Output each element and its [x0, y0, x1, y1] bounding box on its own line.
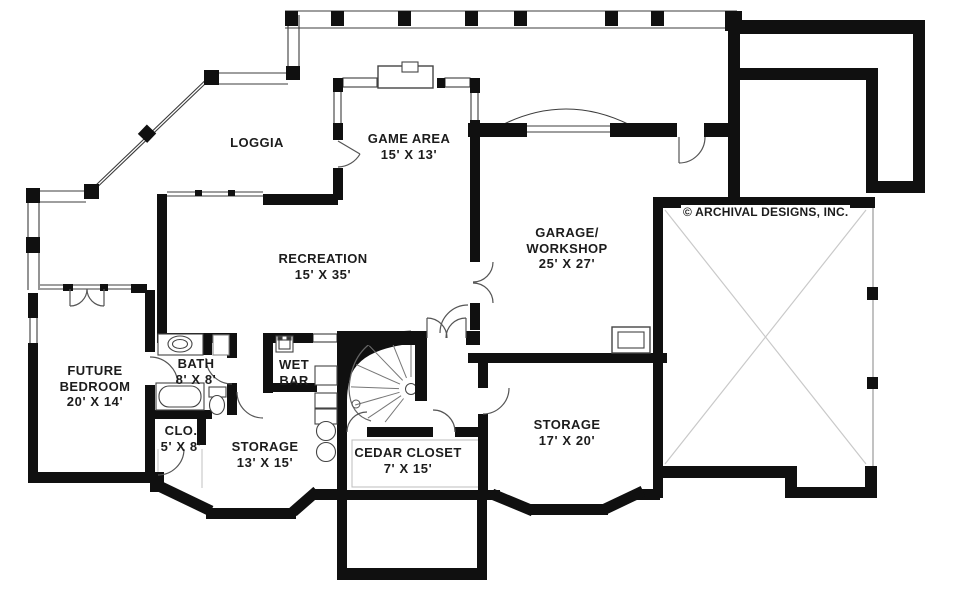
room-label-storage-17: STORAGE17' X 20' — [534, 417, 601, 448]
floor-plan: LOGGIA GAME AREA15' X 13' GARAGE/WORKSHO… — [0, 0, 960, 597]
garage-man-door — [679, 137, 705, 163]
room-label-wet-bar: WETBAR — [279, 357, 309, 388]
room-label-storage-13: STORAGE13' X 15' — [232, 439, 299, 470]
cedar-door-right — [433, 410, 455, 432]
stairhall-double-door-right — [446, 318, 466, 338]
floor-plan-drawing — [0, 0, 960, 597]
room-label-loggia: LOGGIA — [230, 135, 284, 151]
copyright-text: © ARCHIVAL DESIGNS, INC. — [681, 205, 850, 219]
unfinished-area-cross — [665, 208, 873, 466]
room-label-game-area: GAME AREA15' X 13' — [368, 131, 451, 162]
window-mullions — [195, 190, 235, 196]
walls — [28, 20, 925, 580]
laundry-tubs-icon — [317, 422, 336, 462]
garage-window-icon — [612, 327, 650, 353]
hall-door — [237, 392, 263, 418]
stairhall-double-door-left — [427, 318, 447, 338]
bathtub-icon — [156, 383, 204, 410]
garage-double-door-lower — [473, 283, 493, 303]
bedroom-door — [150, 357, 178, 385]
garage-door-arc — [502, 109, 630, 125]
bedroom-french-door-left — [70, 289, 87, 306]
room-label-bath: BATH8' X 8' — [176, 356, 217, 387]
vanity-sink-icon — [158, 334, 229, 355]
room-label-garage-workshop: GARAGE/WORKSHOP25' X 27' — [526, 225, 607, 272]
room-label-recreation: RECREATION15' X 35' — [279, 251, 368, 282]
toilet-icon — [209, 387, 226, 415]
cedar-door-left — [347, 412, 367, 432]
room-label-cedar-closet: CEDAR CLOSET7' X 15' — [354, 445, 461, 476]
garage-double-door-upper — [473, 262, 493, 282]
counter-and-mechanical — [315, 366, 337, 424]
bedroom-french-door-right — [87, 289, 104, 306]
bar-sink-icon — [276, 336, 293, 352]
game-area-door — [338, 141, 360, 167]
fireplace-icon — [378, 62, 433, 88]
room-label-future-bedroom: FUTUREBEDROOM20' X 14' — [60, 363, 131, 410]
storage17-door — [483, 388, 509, 414]
room-label-closet: CLO.5' X 8' — [161, 423, 202, 454]
